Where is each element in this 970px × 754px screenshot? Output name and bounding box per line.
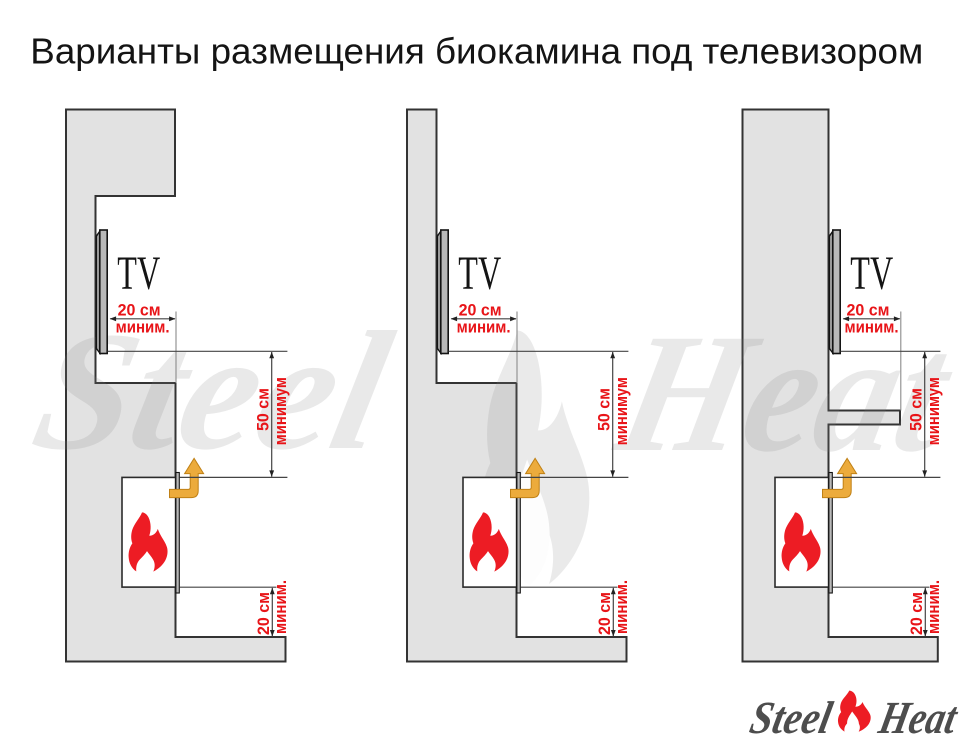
svg-text:Heat: Heat: [874, 693, 963, 743]
svg-text:Варианты размещения биокамина: Варианты размещения биокамина под телеви…: [30, 31, 923, 72]
svg-text:минимум: минимум: [271, 377, 290, 445]
svg-text:миним.: миним.: [845, 317, 899, 336]
svg-text:минимум: минимум: [612, 377, 631, 445]
svg-text:миним.: миним.: [271, 580, 290, 634]
svg-text:TV: TV: [458, 247, 501, 300]
svg-text:минимум: минимум: [924, 377, 943, 445]
svg-text:миним.: миним.: [457, 317, 511, 336]
svg-text:50 см: 50 см: [254, 388, 273, 431]
svg-text:TV: TV: [850, 247, 893, 300]
svg-text:миним.: миним.: [924, 580, 943, 634]
svg-text:50 см: 50 см: [595, 388, 614, 431]
svg-text:Steel: Steel: [20, 298, 405, 486]
svg-text:Steel: Steel: [746, 693, 837, 743]
svg-text:50 см: 50 см: [907, 388, 926, 431]
svg-text:TV: TV: [117, 247, 160, 300]
svg-text:миним.: миним.: [116, 317, 170, 336]
svg-text:миним.: миним.: [612, 580, 631, 634]
